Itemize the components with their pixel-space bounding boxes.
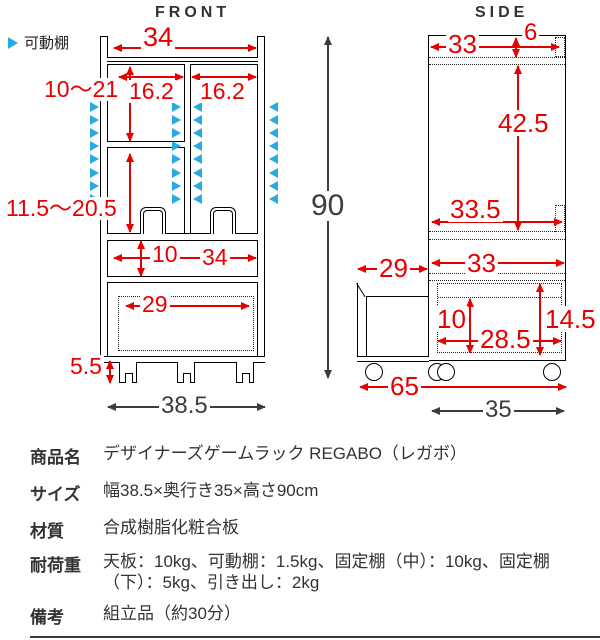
shelf-pin-arrow-icon [193, 115, 202, 125]
movable-shelf-legend: 可動棚 [8, 32, 69, 53]
side-top-back-offset-label: 6 [522, 21, 539, 45]
drawer-caster [365, 363, 383, 381]
front-top-width-label: 34 [141, 24, 175, 51]
front-leg-left [119, 362, 137, 383]
spec-value-notes: 組立品（約30分） [103, 603, 595, 624]
side-pullout-depth-label: 29 [377, 255, 410, 281]
side-mid-depth-label: 33.5 [448, 196, 503, 222]
shelf-pin-arrows-inner-right [193, 100, 202, 206]
front-right-post [257, 36, 265, 360]
side-lower-depth-arrow [432, 262, 564, 264]
shelf-pin-arrow-icon [269, 102, 278, 112]
front-lower-fixed-shelf [107, 276, 258, 283]
front-slot-height-label: 10 [150, 243, 180, 266]
front-total-width-label: 38.5 [159, 394, 210, 418]
side-drawer-hidden-top-edge [438, 297, 561, 298]
side-drawer-height-arrow [539, 284, 541, 355]
front-leg-height-arrow [109, 361, 111, 383]
side-upper-height-arrow [517, 66, 519, 230]
shelf-pin-arrow-icon [172, 154, 181, 164]
spec-label-product-name: 商品名 [30, 443, 81, 468]
side-mid-shelf-hidden-line-1 [429, 231, 565, 232]
shelf-pin-arrow-icon [90, 102, 99, 112]
spec-label-size: サイズ [30, 480, 81, 505]
front-center-divider [184, 64, 191, 234]
front-controller-stand-right [210, 207, 236, 234]
shelf-pin-arrow-icon [172, 181, 181, 191]
shelf-pin-arrow-icon [172, 194, 181, 204]
shelf-pin-arrow-icon [90, 168, 99, 178]
front-view-title: FRONT [155, 4, 230, 22]
cabinet-caster-rear [543, 363, 561, 381]
spec-label-material: 材質 [30, 517, 64, 542]
spec-label-load-capacity: 耐荷重 [30, 551, 81, 576]
side-top-back-offset-arrow [515, 38, 517, 57]
shelf-pin-arrow-icon [172, 168, 181, 178]
side-drawer-inner-height-label: 10 [435, 306, 468, 332]
side-drawer-inner-height-arrow [469, 299, 471, 353]
shelf-pin-arrow-icon [269, 115, 278, 125]
shelf-pin-arrows-inner-left [172, 100, 181, 206]
shelf-pin-arrow-icon [90, 128, 99, 138]
front-left-inner-width-label: 16.2 [127, 80, 176, 103]
side-lower-depth-label: 33 [465, 250, 498, 276]
pullout-drawer-front-inner-line [366, 296, 367, 360]
front-right-inner-width-label: 16.2 [198, 80, 247, 103]
front-leg-center [177, 362, 195, 383]
front-lower-shelf-range-arrow [129, 154, 131, 232]
movable-shelf-legend-label: 可動棚 [24, 32, 69, 53]
front-slot-width-arrow [114, 257, 256, 259]
front-drawer-width-label: 29 [140, 293, 170, 316]
front-controller-stand-left [140, 207, 166, 234]
spec-value-material: 合成樹脂化粧合板 [103, 517, 595, 538]
side-low-shelf-hidden-line-2 [429, 280, 565, 281]
cabinet-caster-front-2 [437, 363, 455, 381]
shelf-pin-arrow-icon [193, 168, 202, 178]
shelf-pin-arrow-icon [172, 128, 181, 138]
side-drawer-inner-depth-label: 28.5 [478, 326, 533, 352]
shelf-pin-arrow-icon [90, 181, 99, 191]
shelf-pin-arrow-icon [269, 181, 278, 191]
front-top-width-arrow [114, 47, 256, 49]
pullout-drawer-bottom [357, 356, 429, 362]
shelf-pin-arrow-icon [172, 115, 181, 125]
shelf-pin-arrow-icon [269, 154, 278, 164]
front-top-board-edge [107, 61, 258, 62]
movable-shelf-arrow-icon [8, 37, 18, 49]
front-middle-fixed-shelf [107, 233, 258, 241]
shelf-pin-arrow-icon [269, 128, 278, 138]
shelf-pin-arrows-outer-left [90, 100, 99, 206]
side-drawer-height-label: 14.5 [543, 306, 598, 332]
side-mid-shelf-hidden-line-2 [429, 239, 565, 240]
shelf-pin-arrow-icon [90, 141, 99, 151]
shelf-pin-arrow-icon [269, 141, 278, 151]
shelf-pin-arrow-icon [90, 115, 99, 125]
spec-value-size: 幅38.5×奥行き35×高さ90cm [103, 480, 595, 501]
spec-value-load-capacity: 天板：10kg、可動棚：1.5kg、固定棚（中）：10kg、固定棚（下）：5kg… [103, 551, 595, 593]
spec-table-bottom-rule [30, 636, 600, 638]
shelf-pin-arrow-icon [90, 154, 99, 164]
shelf-pin-arrow-icon [193, 128, 202, 138]
shelf-pin-arrow-icon [172, 141, 181, 151]
shelf-pin-arrow-icon [269, 194, 278, 204]
shelf-pin-arrow-icon [269, 168, 278, 178]
side-view-title: SIDE [475, 4, 528, 22]
front-lower-shelf-range-label: 11.5〜20.5 [4, 197, 119, 220]
shelf-pin-arrow-icon [193, 141, 202, 151]
side-top-board-hidden-line-2 [429, 64, 565, 65]
front-slot-width-label: 34 [200, 246, 230, 269]
pullout-drawer-top-edge [366, 296, 428, 297]
diagram-page: FRONT SIDE 可動棚 34 16.2 16.2 10〜21 11.5〜2… [0, 0, 600, 640]
front-leg-height-label: 5.5 [68, 355, 104, 378]
side-total-depth-with-drawer-label: 65 [388, 373, 421, 399]
shelf-pin-arrow-icon [193, 194, 202, 204]
pullout-drawer-front-panel [357, 283, 358, 361]
shelf-pin-arrow-icon [193, 181, 202, 191]
shelf-pin-arrow-icon [193, 154, 202, 164]
front-upper-shelf-range-label: 10〜21 [42, 78, 120, 101]
front-leg-right [236, 362, 254, 383]
side-total-depth-label: 35 [483, 398, 514, 422]
spec-value-product-name: デザイナーズゲームラック REGABO（レガボ） [103, 443, 595, 464]
front-total-height-label: 90 [309, 191, 346, 221]
side-upper-height-label: 42.5 [496, 110, 551, 136]
side-top-depth-label: 33 [446, 31, 479, 57]
shelf-pin-arrows-outer-right [269, 100, 278, 206]
spec-label-notes: 備考 [30, 603, 64, 628]
